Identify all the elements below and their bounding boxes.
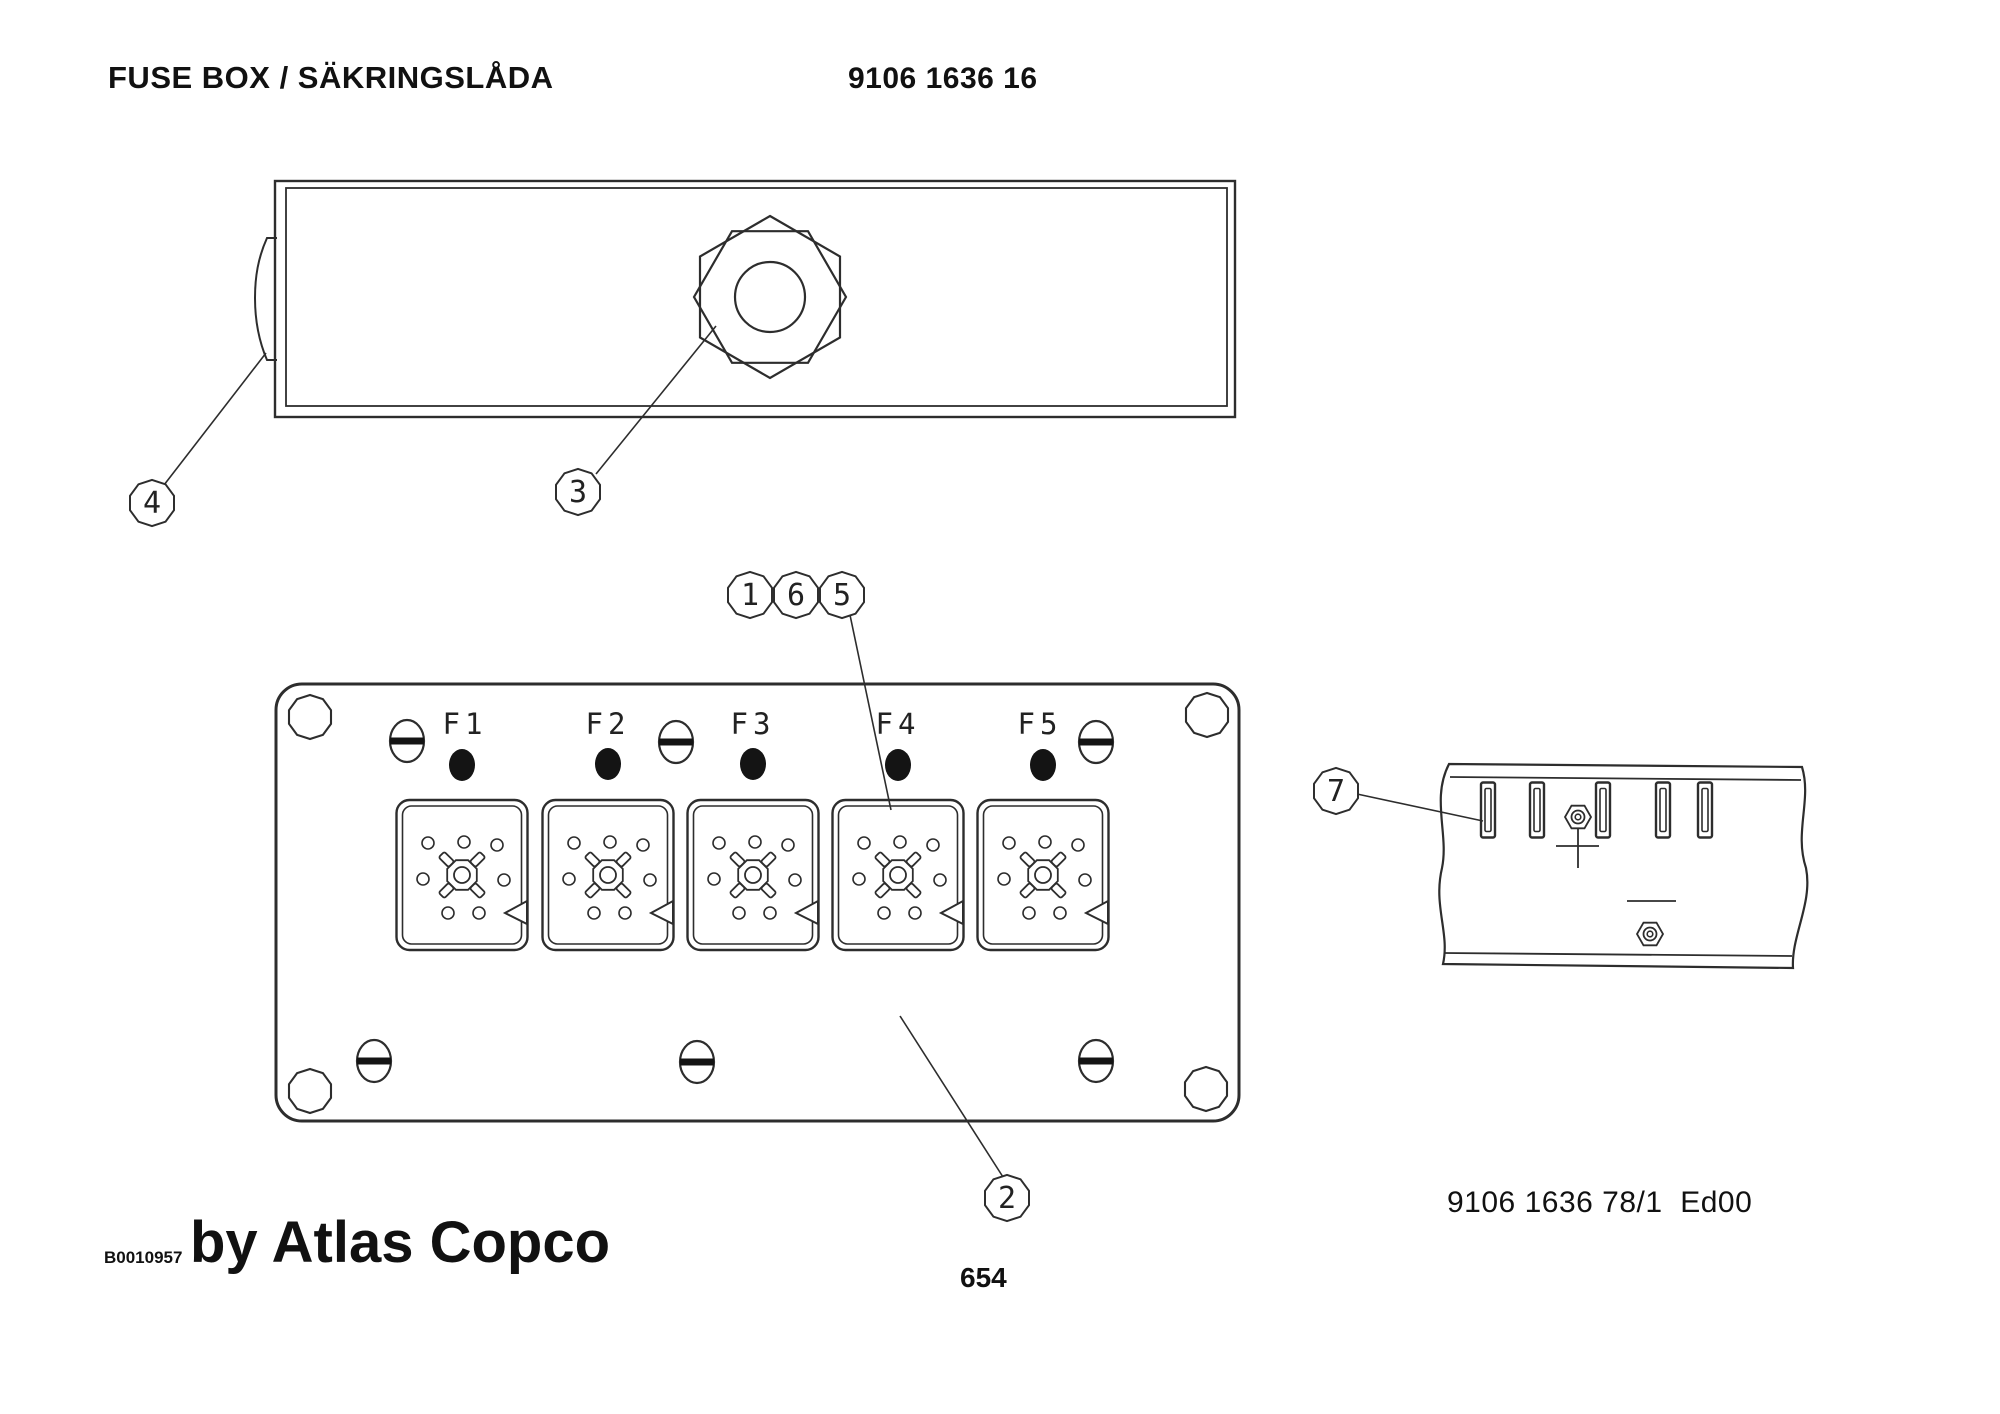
balloon-7: 7 [1314,768,1358,814]
leader-line-2 [900,1016,1003,1177]
corner-hole [289,1069,331,1113]
corner-hole [1186,693,1228,737]
rail-bolt [1637,923,1663,946]
cover-clip [255,238,277,360]
fuse-label-f3: F3 [731,707,776,741]
rail-slot [1481,783,1495,838]
fuse-indicator [449,749,475,781]
cover-inner-outline [286,188,1227,406]
balloon-5: 5 [820,572,864,618]
svg-text:4: 4 [143,486,161,521]
fuse-indicator [1030,749,1056,781]
balloon-6: 6 [774,572,818,618]
rail-bottom-edge [1444,953,1792,956]
brand-wordmark: by Atlas Copco [190,1214,610,1272]
panel-screw [680,1041,714,1083]
rail-slot [1698,783,1712,838]
rail-slot [1656,783,1670,838]
fuse-module-5 [978,800,1109,950]
balloon-1: 1 [728,572,772,618]
panel-screw [390,720,424,762]
parts-catalog-page: FUSE BOX / SÄKRINGSLÅDA 9106 1636 16 [0,0,2000,1414]
svg-text:2: 2 [998,1181,1016,1216]
mounting-rail-view: 7 [1314,764,1807,968]
cover-view: 3 4 [130,181,1235,526]
fuse-module-2 [543,800,674,950]
fuse-indicator [740,748,766,780]
corner-hole [1185,1067,1227,1111]
page-number: 654 [960,1264,1007,1292]
fuse-label-f2: F2 [586,707,631,741]
balloon-4: 4 [130,480,174,526]
panel-screw [357,1040,391,1082]
fuse-label-f4: F4 [876,707,921,741]
panel-screw [659,721,693,763]
cover-outline [275,181,1235,417]
rail-top-edge [1450,777,1801,780]
panel-screw [1079,721,1113,763]
fuse-label-f1: F1 [443,707,488,741]
gland-nut [694,216,846,378]
fuse-label-f5: F5 [1018,707,1063,741]
corner-hole [289,695,331,739]
drawing-reference: 9106 1636 78/1 Ed00 [1447,1188,1752,1218]
svg-text:6: 6 [787,578,805,613]
leader-line-4 [164,353,266,485]
balloon-2: 2 [985,1175,1029,1221]
fuse-module-4 [833,800,964,950]
leader-line-7 [1357,794,1483,821]
image-code: B0010957 [104,1249,182,1266]
svg-text:7: 7 [1327,774,1345,809]
fuse-indicator [595,748,621,780]
rail-slot [1596,783,1610,838]
svg-text:5: 5 [833,578,851,613]
rail-slot [1530,783,1544,838]
svg-text:1: 1 [741,578,759,613]
fuse-module-1 [397,800,528,950]
leader-line-3 [596,326,716,474]
fuse-indicator [885,749,911,781]
rail-bolt [1565,806,1591,829]
svg-text:3: 3 [569,475,587,510]
panel-screw [1079,1040,1113,1082]
fuse-panel-view: F1 F2 F3 F4 F5 1 6 [276,572,1239,1221]
balloon-3: 3 [556,469,600,515]
fuse-module-3 [688,800,819,950]
